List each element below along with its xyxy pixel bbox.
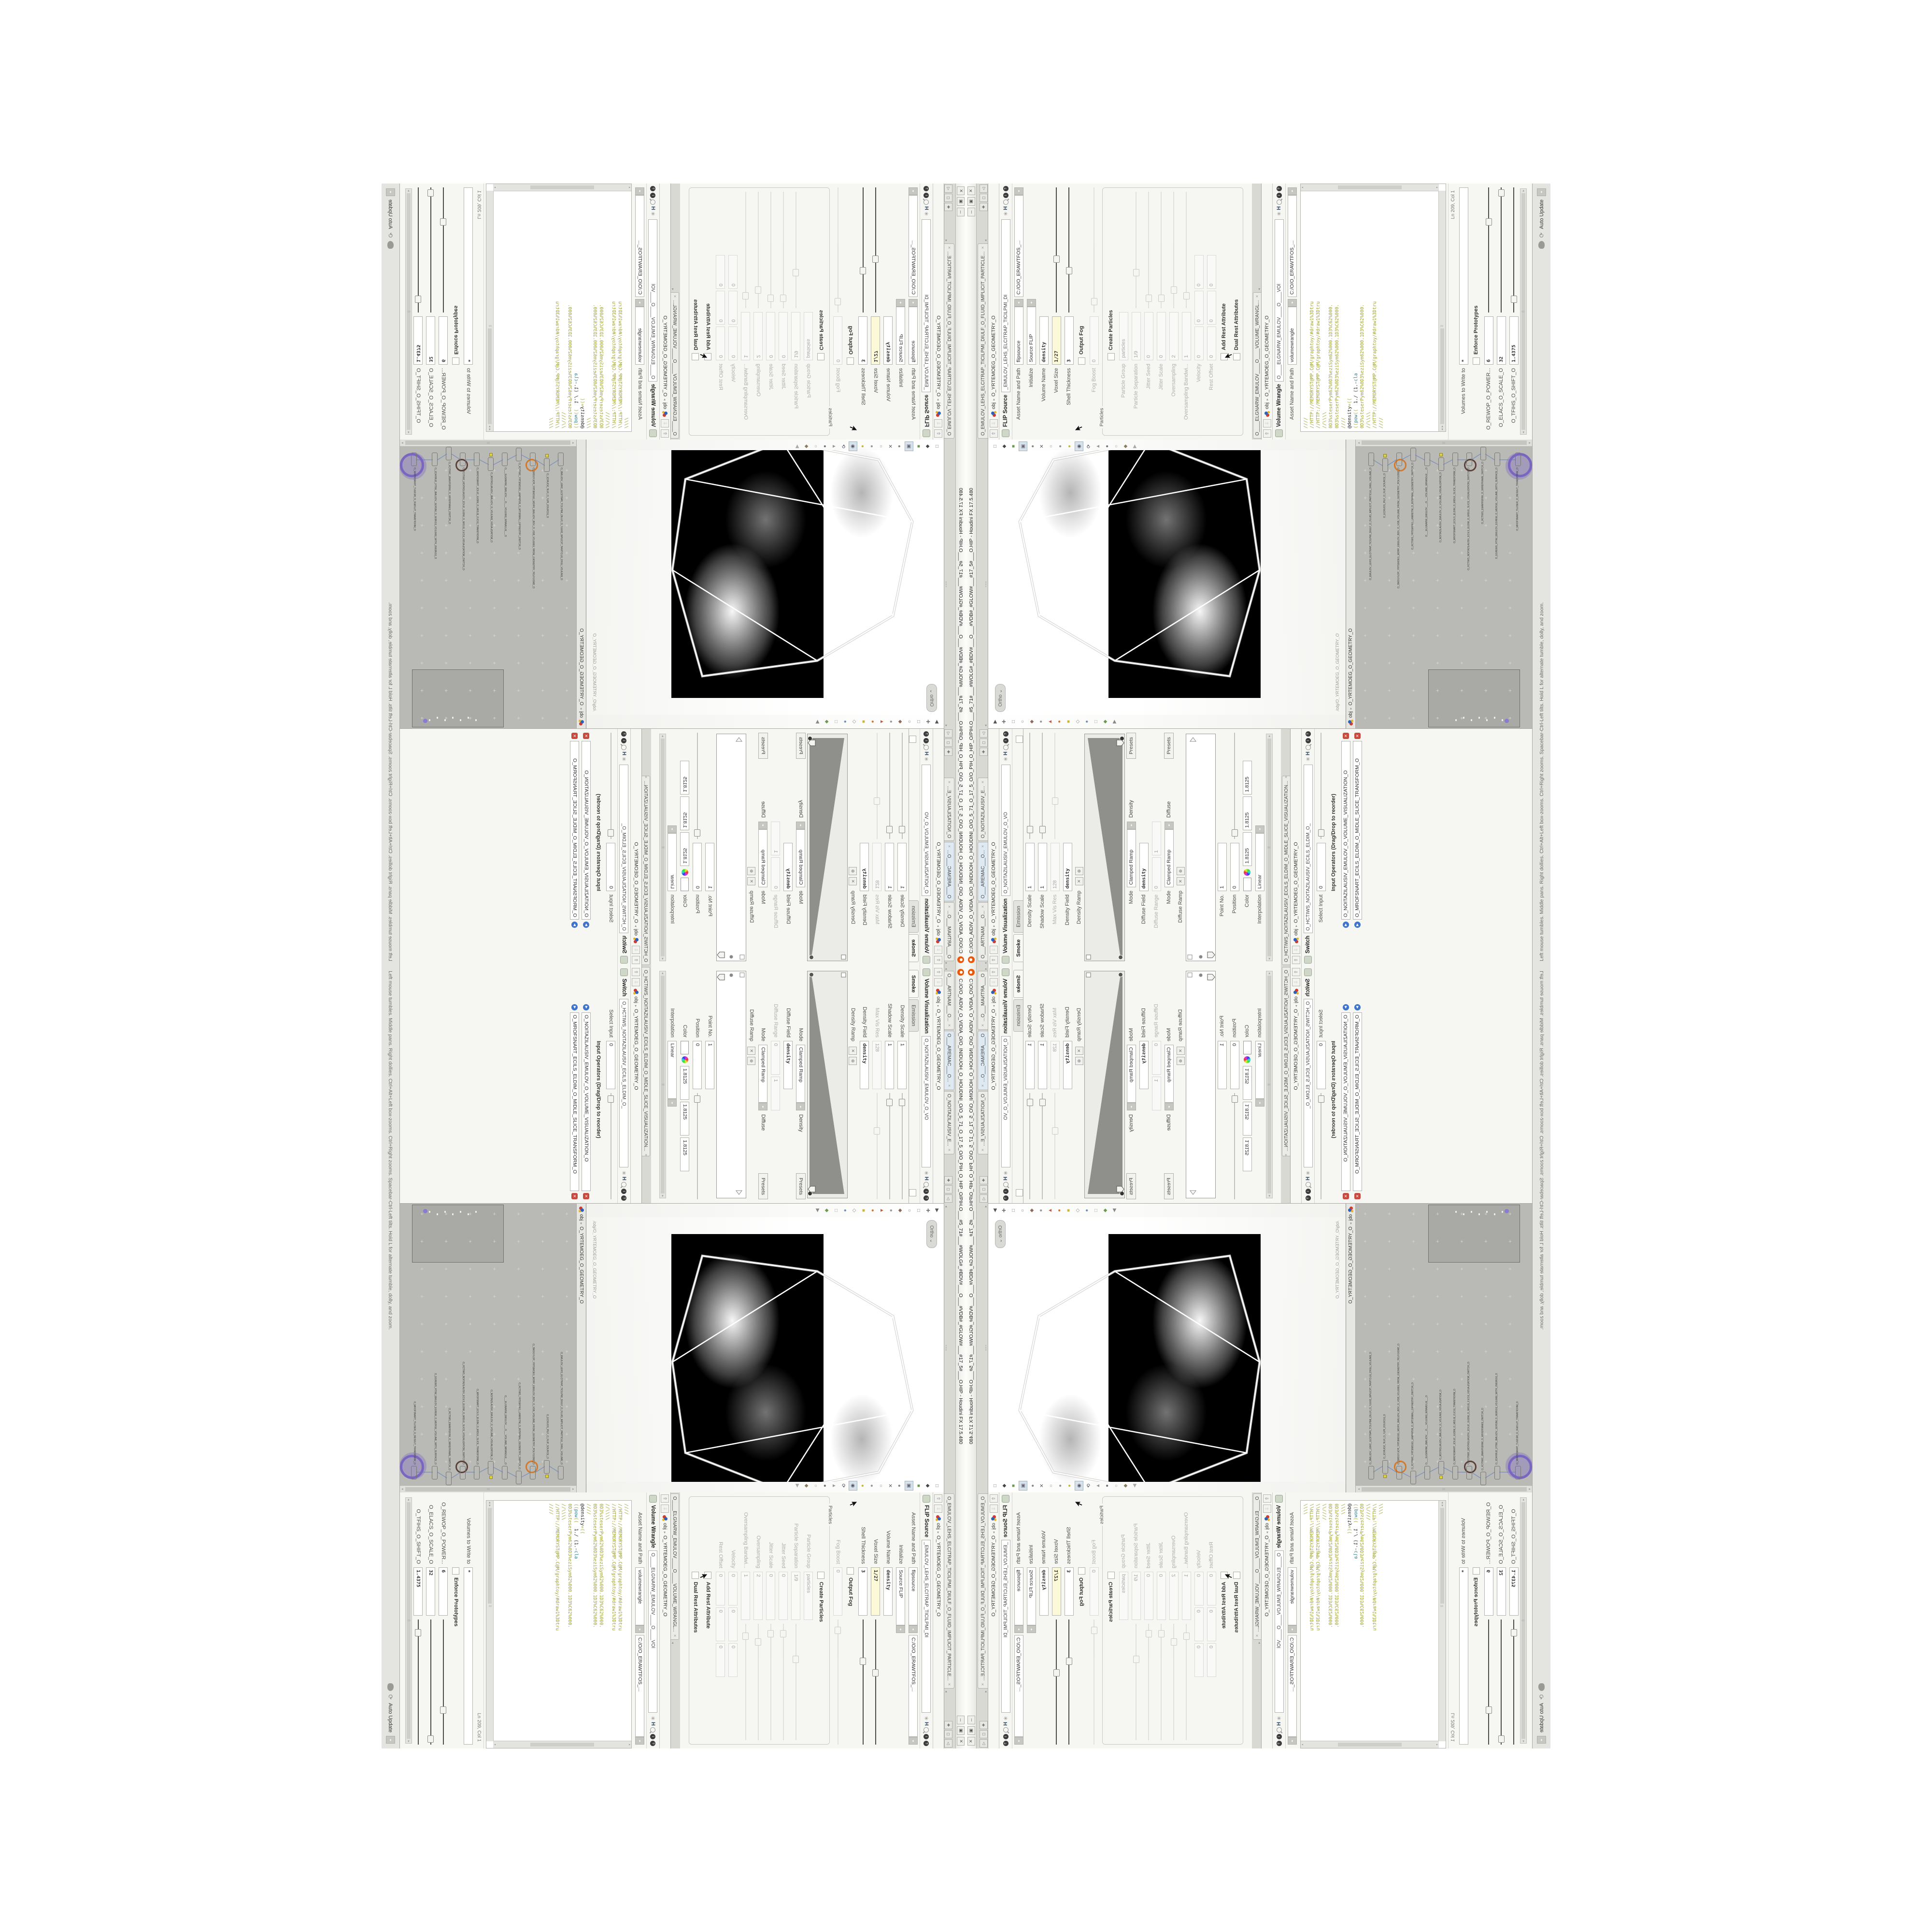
info-icon[interactable]: i: [1306, 738, 1311, 743]
viewport-tool-icon-l7[interactable]: ●: [869, 1206, 877, 1215]
network-node-3[interactable]: [516, 448, 522, 461]
viewport-tool-icon-r10[interactable]: ⟳: [839, 442, 847, 451]
jump-down-icon[interactable]: ⇩: [632, 978, 640, 986]
flip-a-field-2[interactable]: density: [884, 1567, 893, 1616]
viewport-tool-icon-r8[interactable]: ●: [859, 442, 867, 451]
color-wheel-icon[interactable]: [1244, 1056, 1250, 1063]
viewport-tool-icon-l8[interactable]: ■: [1065, 1206, 1072, 1215]
title-bar[interactable]: C:/O/O_AIDIV_O_VIDIA_O/O_INIDUOH_O_HOUDI…: [966, 966, 977, 1748]
breadcrumb-node[interactable]: O_YRTEMOEG_O_GEOMETRY_O: [579, 1226, 584, 1304]
viewport-tool-icon-r12[interactable]: ●: [821, 442, 829, 451]
jump-up-icon[interactable]: ⇧: [1263, 1494, 1271, 1503]
vv-b-field-0[interactable]: density: [784, 843, 793, 891]
viewport-tool-icon-r15[interactable]: ▶: [794, 1481, 801, 1490]
search-icon[interactable]: [924, 745, 929, 750]
jump-down-icon[interactable]: ⇩: [990, 1505, 998, 1513]
search-icon[interactable]: [622, 1182, 627, 1187]
vv-a-field-1[interactable]: 1: [885, 843, 895, 891]
horizontal-scrollbar[interactable]: ◂⠿▸: [1266, 971, 1273, 1198]
network-canvas[interactable]: ++++++++++++++++++++++++++++++++++++++++…: [1356, 1204, 1533, 1485]
gear-icon[interactable]: ✳: [1305, 1171, 1311, 1175]
delete-operator-icon[interactable]: ✕: [583, 733, 590, 739]
color-wheel-icon[interactable]: [1244, 869, 1250, 876]
breadcrumb-root[interactable]: obj: [936, 1523, 941, 1530]
viewport-tool-icon-r5[interactable]: ✕: [1038, 442, 1046, 451]
help-icon[interactable]: ?: [1003, 1741, 1009, 1746]
breadcrumb-root[interactable]: obj: [662, 1523, 668, 1530]
wrangle-b-checkbox-1[interactable]: [453, 1567, 460, 1575]
viewport-tool-icon-l12[interactable]: ◆: [1101, 717, 1109, 726]
volume-wrangle-name-field[interactable]: O____ELGNARW_EMULOV____O____VOl: [1275, 1550, 1284, 1713]
switch-pane-tabbar[interactable]: O_HCTIWS_NOITAZILAUSIV_ECILS_ELDIM_O_MID…: [641, 966, 651, 1203]
vv-c-slider-1[interactable]: [694, 733, 701, 839]
vv-b-field-1-1[interactable]: 1: [771, 822, 781, 855]
scroll-down-icon[interactable]: ▾: [400, 442, 404, 444]
flip-b-field-7-1[interactable]: 0: [1194, 1607, 1204, 1641]
viewport-tool-icon-r0[interactable]: □: [991, 442, 999, 451]
viewport-tool-icon-r8[interactable]: ●: [1065, 1481, 1073, 1490]
viewport-tool-icon-r14[interactable]: ◆: [1122, 1481, 1129, 1490]
pane-tab-2[interactable]: O_NOITAZILAUSIV_E...✕: [978, 778, 988, 841]
breadcrumb-node[interactable]: O_YRTEMOEG_O_GEOMETRY_O: [991, 315, 996, 397]
code-vertical-scrollbar[interactable]: ▴▾: [493, 184, 631, 191]
search-icon[interactable]: [1003, 745, 1009, 750]
help-icon[interactable]: ?: [622, 1195, 627, 1201]
combo-spinner-icon[interactable]: ◂▸: [1014, 187, 1023, 195]
combo-spinner-icon[interactable]: ◂▸: [668, 825, 677, 833]
combo-spinner-icon[interactable]: ◂▸: [636, 1625, 645, 1633]
vv-c-field-3[interactable]: Linear: [1255, 833, 1264, 891]
operator-path-field-0[interactable]: O_NOITAZILAUSIV_EMULOV_O_VOLUME_VISUALIZ…: [1341, 741, 1350, 920]
vv-c-field-3[interactable]: Linear: [668, 1041, 677, 1099]
viewport-tool-icon-r12[interactable]: ●: [1103, 1481, 1111, 1490]
pane-controls[interactable]: ✚ ◻ ◁: [980, 1176, 988, 1203]
scroll-up-icon[interactable]: ▴: [1357, 442, 1361, 444]
wrangle-pane-tab[interactable]: O____ELGNARW_EMULOV____O____VOLUME_WRANG…: [1253, 1493, 1261, 1640]
tab-emission[interactable]: Emission: [909, 999, 919, 1032]
flip-b-field-8-1[interactable]: 0: [716, 1607, 725, 1641]
jump-to-operator-icon[interactable]: ▶: [1343, 1004, 1349, 1010]
jump-up-icon[interactable]: ⇧: [661, 1494, 669, 1503]
viewport-tool-icon-r11[interactable]: ▲: [830, 1481, 838, 1490]
flip-b-checkbox-0[interactable]: [1108, 1572, 1115, 1579]
volume-wrangle-name-field[interactable]: O____ELGNARW_EMULOV____O____VOl: [649, 1550, 658, 1713]
pane-controls[interactable]: ✚ ◻ ◁: [944, 729, 952, 756]
switch-name-field[interactable]: O_HCTIWS_NOITAZILAUSIV_ECILS_ELDIM_O_: [620, 999, 629, 1167]
viewport-tool-icon-l9[interactable]: ◇: [1074, 1206, 1081, 1215]
network-node-10[interactable]: [411, 453, 417, 466]
gear-icon[interactable]: ✳: [1003, 757, 1009, 761]
help-icon[interactable]: ?: [1003, 186, 1009, 191]
horizontal-scrollbar[interactable]: ◂⠿▸: [659, 971, 666, 1198]
pane-tab-0[interactable]: O___ARTNAM___O...✕: [944, 902, 954, 961]
gear-icon[interactable]: ✳: [923, 757, 930, 761]
combo-spinner-icon[interactable]: ◂▸: [636, 187, 645, 195]
tab-emission[interactable]: Emission: [1013, 900, 1023, 933]
vv-c-field-0[interactable]: 1: [1218, 1041, 1227, 1089]
breadcrumb-root[interactable]: obj: [991, 996, 996, 1003]
volume-wrangle-name-field[interactable]: O____ELGNARW_EMULOV____O____VOl: [649, 219, 658, 382]
wrangle-b-field-0[interactable]: *: [464, 187, 473, 365]
tab-emission[interactable]: Emission: [909, 900, 919, 933]
viewport-tool-icon-r6[interactable]: ○: [1047, 442, 1055, 451]
network-node-4[interactable]: [1424, 453, 1430, 466]
scroll-down-icon[interactable]: ▾: [1528, 442, 1532, 444]
viewport-tool-icon-r8[interactable]: ●: [1065, 442, 1073, 451]
vv-extra-checkbox[interactable]: [909, 736, 916, 743]
flip-b-slider-4[interactable]: [767, 1624, 775, 1740]
network-node-7[interactable]: [460, 1466, 466, 1479]
wrangle-b-field-3[interactable]: 32: [426, 316, 436, 365]
vv-a-slider-0[interactable]: [1026, 733, 1034, 839]
flip-a-slider-4[interactable]: [859, 187, 867, 313]
combo-spinner-icon[interactable]: ◂▸: [636, 299, 645, 307]
wrangle-b-slider-3[interactable]: [1497, 1619, 1505, 1745]
gear-icon[interactable]: ✳: [1305, 757, 1311, 761]
center-pane-tabbar[interactable]: ◂ ⠿⠿⠿: [944, 1204, 955, 1492]
vv-c-slider-1[interactable]: [1231, 1093, 1238, 1199]
close-button[interactable]: ✕: [957, 186, 965, 195]
viewport-tool-icon-l2[interactable]: □: [915, 717, 923, 726]
tab-scroll-left-icon[interactable]: ◂: [984, 962, 988, 964]
jump-down-icon[interactable]: ⇩: [661, 1505, 669, 1513]
help-icon[interactable]: ?: [924, 1195, 929, 1201]
vv-mode1-mode-field[interactable]: Clamped Ramp: [1127, 829, 1136, 887]
volume-wrangle-name-field[interactable]: O____ELGNARW_EMULOV____O____VOl: [1275, 219, 1284, 382]
hda-icon[interactable]: H: [650, 1722, 656, 1726]
wrangle-b-checkbox-1[interactable]: [1473, 1567, 1480, 1575]
operator-path-field-1[interactable]: O_MROFSNART_ECILS_ELDIM_O_MIDLE_SLICE_TR…: [570, 741, 580, 920]
camera-pill[interactable]: Ortho ⌄: [926, 1220, 937, 1248]
wrangle-b-slider-3[interactable]: [1497, 187, 1505, 313]
help-icon[interactable]: ?: [924, 731, 929, 737]
pane-tab-0[interactable]: O___ARTNAM___O...✕: [944, 971, 954, 1030]
search-icon[interactable]: [651, 1727, 656, 1733]
hda-icon[interactable]: H: [1276, 1722, 1282, 1726]
flip-b-field-8-2[interactable]: 0: [1207, 255, 1216, 289]
flip-a-slider-6[interactable]: [1090, 187, 1098, 313]
tab-scroll-right-icon[interactable]: ◂: [944, 240, 948, 241]
pane-maximize-icon[interactable]: ◻: [944, 739, 952, 747]
help-icon[interactable]: ?: [924, 186, 929, 191]
info-icon[interactable]: i: [924, 1734, 929, 1739]
wrangle-b-checkbox-1[interactable]: [1473, 357, 1480, 365]
vv-b-field-1-0[interactable]: 0: [1152, 1041, 1161, 1075]
combo-spinner-icon[interactable]: ◂▸: [1288, 299, 1297, 307]
breadcrumb-root[interactable]: obj: [991, 402, 996, 409]
viewport-tool-icon-r0[interactable]: □: [991, 1481, 999, 1490]
diffuse-ramp-widget[interactable]: [1186, 734, 1216, 961]
update-mode-selector[interactable]: Auto Update: [388, 199, 394, 229]
flip-b-slider-3[interactable]: [780, 1624, 787, 1740]
recook-icon[interactable]: ⟳: [387, 232, 395, 238]
viewport-tool-icon-l10[interactable]: ●: [1083, 717, 1091, 726]
viewport-tool-icon-r1[interactable]: ◆: [924, 442, 932, 451]
wrangle-b-slider-4[interactable]: [414, 1619, 422, 1745]
network-node-0[interactable]: [558, 453, 564, 466]
jump-to-operator-icon[interactable]: ▶: [572, 1004, 578, 1010]
flip-a-field-4[interactable]: 3: [859, 316, 868, 365]
gear-icon[interactable]: ✳: [1003, 1716, 1009, 1720]
vv-b-field-1-0[interactable]: 0: [771, 857, 781, 891]
viewport-tool-icon-r10[interactable]: ⟳: [839, 1481, 847, 1490]
breadcrumb-root[interactable]: obj: [1264, 402, 1270, 409]
viewport-tool-icon-l0[interactable]: ▶: [991, 1206, 999, 1215]
update-mode-spinner[interactable]: ◂▸: [1537, 1736, 1546, 1744]
viewport-tool-icon-r14[interactable]: ◆: [803, 1481, 810, 1490]
wrangle-b-field-4[interactable]: 1.4375: [1509, 316, 1519, 365]
code-horizontal-scrollbar[interactable]: ◂▸⠿: [486, 1501, 494, 1741]
flip-a-checkbox-5[interactable]: [1078, 357, 1085, 365]
flip-b-field-7-0[interactable]: 0: [729, 1572, 738, 1605]
flip-b-field-7-0[interactable]: 0: [1194, 327, 1204, 360]
breadcrumb-root[interactable]: obj: [1348, 1214, 1353, 1221]
viewport-left-toolbar[interactable]: ▶✚□○◆●▲●■◇●□◆▶: [991, 1205, 1118, 1216]
gear-icon[interactable]: ✳: [621, 1171, 627, 1175]
wrangle-a-field2-0[interactable]: C:/O/O_ERAWTFOS_...: [636, 1635, 645, 1737]
viewport-tool-icon-r13[interactable]: ○: [812, 442, 820, 451]
operator-path-field-1[interactable]: O_MROFSNART_ECILS_ELDIM_O_MIDLE_SLICE_TR…: [1353, 1012, 1362, 1191]
viewport-tool-icon-l11[interactable]: □: [832, 717, 840, 726]
network-node-5[interactable]: [1438, 457, 1444, 471]
pane-move-icon[interactable]: ✚: [944, 748, 952, 756]
viewport-tool-icon-l3[interactable]: ○: [1019, 717, 1026, 726]
network-breadcrumb[interactable]: obj ▸ O_YRTEMOEG_O_GEOMETRY_O: [1346, 1204, 1356, 1492]
vv-c-field-2-2[interactable]: 1.8125: [1243, 761, 1252, 795]
search-icon[interactable]: [1306, 745, 1311, 750]
flip-b-field-6[interactable]: 1: [1182, 312, 1191, 360]
help-icon[interactable]: ?: [1003, 731, 1009, 737]
vv-extra-checkbox[interactable]: [1016, 1189, 1023, 1196]
breadcrumb-root[interactable]: obj: [1264, 1523, 1270, 1530]
vv-a-field-0[interactable]: 1: [1025, 1041, 1035, 1089]
flip-b-field-8-2[interactable]: 0: [1207, 1643, 1216, 1677]
help-icon[interactable]: ?: [924, 1741, 929, 1746]
pane-split-icon[interactable]: ◁: [944, 1739, 952, 1747]
flip-b-slider-4[interactable]: [1157, 1624, 1165, 1740]
search-icon[interactable]: [924, 1182, 929, 1187]
flip-b-checkbox-10[interactable]: [1233, 353, 1240, 360]
network-node-6[interactable]: [474, 453, 480, 466]
vv-b-field-1-0[interactable]: 0: [1152, 857, 1161, 891]
flip-a-slider-6[interactable]: [834, 1619, 842, 1745]
close-button[interactable]: ✕: [967, 186, 975, 195]
wrangle-a-field-0[interactable]: volumewrangle: [636, 307, 645, 365]
viewport-tool-icon-r9[interactable]: ◉: [1075, 1481, 1083, 1491]
flip-a-slider-3[interactable]: [1052, 187, 1060, 313]
network-node-4[interactable]: [502, 453, 508, 466]
flip-a-field-0[interactable]: flipsource: [909, 307, 918, 365]
search-icon[interactable]: [622, 745, 627, 750]
tab-scroll-icon[interactable]: ◂: [944, 724, 948, 726]
wrangle-b-checkbox-1[interactable]: [453, 357, 460, 365]
help-icon[interactable]: ?: [651, 1741, 656, 1746]
viewport-left-toolbar[interactable]: ▶✚□○◆●▲●■◇●□◆▶: [814, 716, 941, 727]
vv-a-field-3[interactable]: density: [1063, 1041, 1072, 1089]
jump-down-icon[interactable]: ⇩: [935, 946, 943, 954]
horizontal-scrollbar[interactable]: ◂⠿▸: [1520, 188, 1527, 435]
network-vertical-scrollbar[interactable]: ▴ ⠿ ▾: [399, 1485, 576, 1492]
flip-b-field-8-0[interactable]: 0: [1207, 1572, 1216, 1605]
flip-a-field2-0[interactable]: C:/O/O_ERAWTFOS_...: [1014, 195, 1023, 297]
delete-operator-icon[interactable]: ✕: [1354, 1193, 1361, 1199]
network-editor[interactable]: obj ▸ O_YRTEMOEG_O_GEOMETRY_O ++++++++++…: [399, 440, 586, 728]
vv-mode1-presets-button[interactable]: Presets: [796, 733, 806, 759]
vv-c-field-2-2[interactable]: 1.8125: [681, 761, 690, 795]
network-overview-inset[interactable]: [412, 669, 504, 727]
flip-b-field-5[interactable]: 2: [754, 1572, 763, 1620]
pane-tab-2[interactable]: O_NOITAZILAUSIV_E...✕: [944, 1091, 954, 1154]
color-swatch[interactable]: [681, 878, 689, 891]
vv-b-field-1-0[interactable]: 0: [771, 1041, 781, 1075]
breadcrumb-root[interactable]: obj: [936, 402, 941, 409]
viewport-tool-icon-r3[interactable]: ▣: [1019, 441, 1027, 451]
flip-b-slider-6[interactable]: [1182, 1624, 1190, 1740]
flip-b-slider-3[interactable]: [780, 192, 787, 308]
pane-maximize-icon[interactable]: ◻: [944, 194, 952, 202]
flip-b-field-6[interactable]: 1: [741, 1572, 751, 1620]
flip-b-field-7-1[interactable]: 0: [729, 1607, 738, 1641]
jump-up-icon[interactable]: ⇧: [935, 429, 943, 438]
horizontal-scrollbar[interactable]: ◂⠿▸: [1266, 734, 1273, 961]
breadcrumb-node[interactable]: O_YRTEMOEG_O_GEOMETRY_O: [579, 628, 584, 706]
scene-viewport[interactable]: ▶✚□○◆●▲●■◇●□◆▶ □◆■▣●✕○●●◉⟳▲●○◆▶ Ortho ⌄ …: [586, 1204, 944, 1492]
flip-a-field2-0[interactable]: C:/O/O_ERAWTFOS_...: [909, 195, 918, 297]
gear-icon[interactable]: ✳: [650, 1716, 656, 1720]
vv-a-field-2[interactable]: 128: [873, 1041, 882, 1089]
ramp-delete-point-icon[interactable]: ✕: [849, 1047, 857, 1055]
flip-a-slider-6[interactable]: [1090, 1619, 1098, 1745]
tab-scroll-icon[interactable]: ◂: [671, 288, 675, 290]
viewport-tool-icon-l5[interactable]: ●: [887, 717, 895, 726]
viewport-right-toolbar[interactable]: □◆■▣●✕○●●◉⟳▲●○◆▶: [794, 440, 941, 452]
wrangle-pane-tabbar[interactable]: O____ELGNARW_EMULOV____O____VOLUME_WRANG…: [1252, 1492, 1262, 1748]
hda-icon[interactable]: H: [1305, 752, 1311, 755]
combo-spinner-icon[interactable]: ◂▸: [909, 299, 918, 307]
flip-pane-tab[interactable]: O_EMULOV_LEHS_ELCITRAP_TICILPMI_DIULF_O_…: [978, 243, 988, 439]
viewport-tool-icon-r13[interactable]: ○: [812, 1481, 820, 1490]
viewport-tool-icon-r1[interactable]: ◆: [924, 1481, 932, 1490]
viewport-tool-icon-r7[interactable]: ●: [868, 442, 876, 451]
flip-b-field-8-1[interactable]: 0: [716, 291, 725, 325]
ramp-add-point-icon[interactable]: ⊕: [748, 867, 756, 875]
viewport-tool-icon-r0[interactable]: □: [933, 1481, 941, 1490]
wrangle-b-field-3[interactable]: 32: [1497, 1567, 1506, 1616]
viewport-tool-icon-r7[interactable]: ●: [868, 1481, 876, 1490]
switch-slider-0[interactable]: [1317, 733, 1325, 839]
breadcrumb-node[interactable]: O_YRTEMOEG_O_GEOMETRY_O: [1293, 842, 1299, 923]
viewport-tool-icon-l13[interactable]: ▶: [1110, 717, 1118, 726]
vv-c-field-0[interactable]: 1: [1218, 843, 1227, 891]
wrangle-b-slider-4[interactable]: [1510, 187, 1518, 313]
gear-icon[interactable]: ✳: [923, 1716, 930, 1720]
vv-mode2-presets-button[interactable]: Presets: [758, 1173, 768, 1199]
gear-icon[interactable]: ✳: [1276, 1716, 1282, 1720]
network-node-9[interactable]: [432, 1466, 438, 1479]
vv-b-field-0[interactable]: density: [1139, 1041, 1149, 1089]
viewport-tool-icon-l12[interactable]: ◆: [823, 717, 831, 726]
network-canvas[interactable]: ++++++++++++++++++++++++++++++++++++++++…: [1356, 447, 1533, 728]
vv-a-slider-2[interactable]: [873, 733, 881, 839]
node-flag-dot[interactable]: [545, 454, 549, 457]
search-icon[interactable]: [1277, 1727, 1282, 1733]
combo-spinner-icon[interactable]: ◂▸: [1014, 299, 1023, 307]
node-flag-dot[interactable]: [489, 453, 493, 456]
viewport-tool-icon-l12[interactable]: ◆: [1101, 1206, 1109, 1215]
operator-path-field-0[interactable]: O_NOITAZILAUSIV_EMULOV_O_VOLUME_VISUALIZ…: [1341, 1012, 1350, 1191]
vex-code-editor[interactable]: //////HTTP://MEMORYST@MP.C@M/graphtoy/#d…: [1300, 184, 1446, 432]
network-node-3[interactable]: [516, 1471, 522, 1484]
center-pane-tabbar[interactable]: ◂ ⠿⠿⠿: [944, 440, 955, 728]
window-buttons[interactable]: ─ ▣ ✕: [957, 186, 965, 216]
vv-c-field-2-1[interactable]: 1.8125: [681, 796, 690, 830]
flip-b-field-8-0[interactable]: 0: [716, 1572, 725, 1605]
flip-a-field-1[interactable]: Source FLIP: [896, 1567, 906, 1625]
search-icon[interactable]: [651, 199, 656, 205]
viewport-tool-icon-l4[interactable]: ◆: [1028, 1206, 1036, 1215]
viewport-tool-icon-l4[interactable]: ◆: [896, 1206, 904, 1215]
flip-b-field-6[interactable]: 1: [741, 312, 751, 360]
combo-spinner-icon[interactable]: ◂▸: [796, 822, 806, 829]
jump-down-icon[interactable]: ⇩: [632, 946, 640, 954]
combo-spinner-icon[interactable]: ◂▸: [1165, 822, 1174, 829]
viewport-tool-icon-r4[interactable]: ●: [1029, 1481, 1037, 1490]
network-node-2[interactable]: [530, 1466, 536, 1479]
search-icon[interactable]: [1003, 1727, 1009, 1733]
switch-pane-tab[interactable]: O_HCTIWS_NOITAZILAUSIV_ECILS_ELDIM_O_MID…: [642, 776, 650, 965]
breadcrumb-node[interactable]: O_YRTEMOEG_O_GEOMETRY_O: [936, 1535, 941, 1617]
vv-extra-checkbox[interactable]: [1016, 736, 1023, 743]
center-pane-tabbar[interactable]: ◂ ⠿⠿⠿: [977, 1204, 988, 1492]
ramp-add-point-icon[interactable]: ⊕: [849, 1057, 857, 1065]
flip-b-field-3[interactable]: 0: [779, 1572, 788, 1620]
close-button[interactable]: ✕: [967, 1737, 975, 1746]
viewport-tool-icon-r5[interactable]: ✕: [1038, 1481, 1046, 1490]
flip-b-slider-6[interactable]: [742, 1624, 750, 1740]
flip-b-slider-6[interactable]: [742, 192, 750, 308]
flip-b-checkbox-0[interactable]: [818, 1572, 825, 1579]
density-ramp-widget[interactable]: [807, 734, 848, 961]
volume-visualization-name-field[interactable]: O_NOITAZILAUSIV_EMULOV_O_VO: [922, 1036, 931, 1167]
viewport-tool-icon-l1[interactable]: ✚: [1000, 717, 1008, 726]
combo-spinner-icon[interactable]: ◂▸: [759, 822, 768, 829]
hda-icon[interactable]: H: [923, 1177, 929, 1180]
minimize-button[interactable]: ─: [967, 208, 975, 216]
network-overview-inset[interactable]: [412, 1205, 504, 1263]
flip-a-field2-0[interactable]: C:/O/O_ERAWTFOS_...: [909, 1635, 918, 1737]
vv-b-field-0[interactable]: density: [784, 1041, 793, 1089]
scroll-up-icon[interactable]: ▴: [571, 442, 575, 444]
scrollbar-thumb[interactable]: ⠿: [1362, 1487, 1527, 1492]
gear-icon[interactable]: ✳: [923, 212, 930, 216]
help-icon[interactable]: ?: [622, 731, 627, 737]
scene-viewport[interactable]: ▶✚□○◆●▲●■◇●□◆▶ □◆■▣●✕○●●◉⟳▲●○◆▶ Ortho ⌄ …: [988, 440, 1346, 728]
pane-tab-2[interactable]: O_NOITAZILAUSIV_E...✕: [944, 778, 954, 841]
vv-a-field-3[interactable]: density: [860, 843, 869, 891]
viewport-tool-icon-r11[interactable]: ▲: [830, 442, 838, 451]
pane-maximize-icon[interactable]: ◻: [980, 1730, 988, 1738]
code-vertical-scrollbar[interactable]: ▴▾: [1301, 184, 1439, 191]
viewport-tool-icon-l5[interactable]: ●: [1037, 1206, 1045, 1215]
viewport-tool-icon-l2[interactable]: □: [915, 1206, 923, 1215]
viewport-tool-icon-l13[interactable]: ▶: [1110, 1206, 1118, 1215]
viewport-tool-icon-r12[interactable]: ●: [1103, 442, 1111, 451]
vv-b-field-1-1[interactable]: 1: [1152, 822, 1161, 855]
pane-move-icon[interactable]: ✚: [944, 1176, 952, 1184]
network-node-8[interactable]: [1480, 447, 1486, 460]
minimize-button[interactable]: ─: [957, 1716, 965, 1724]
flip-b-slider-4[interactable]: [1157, 192, 1165, 308]
